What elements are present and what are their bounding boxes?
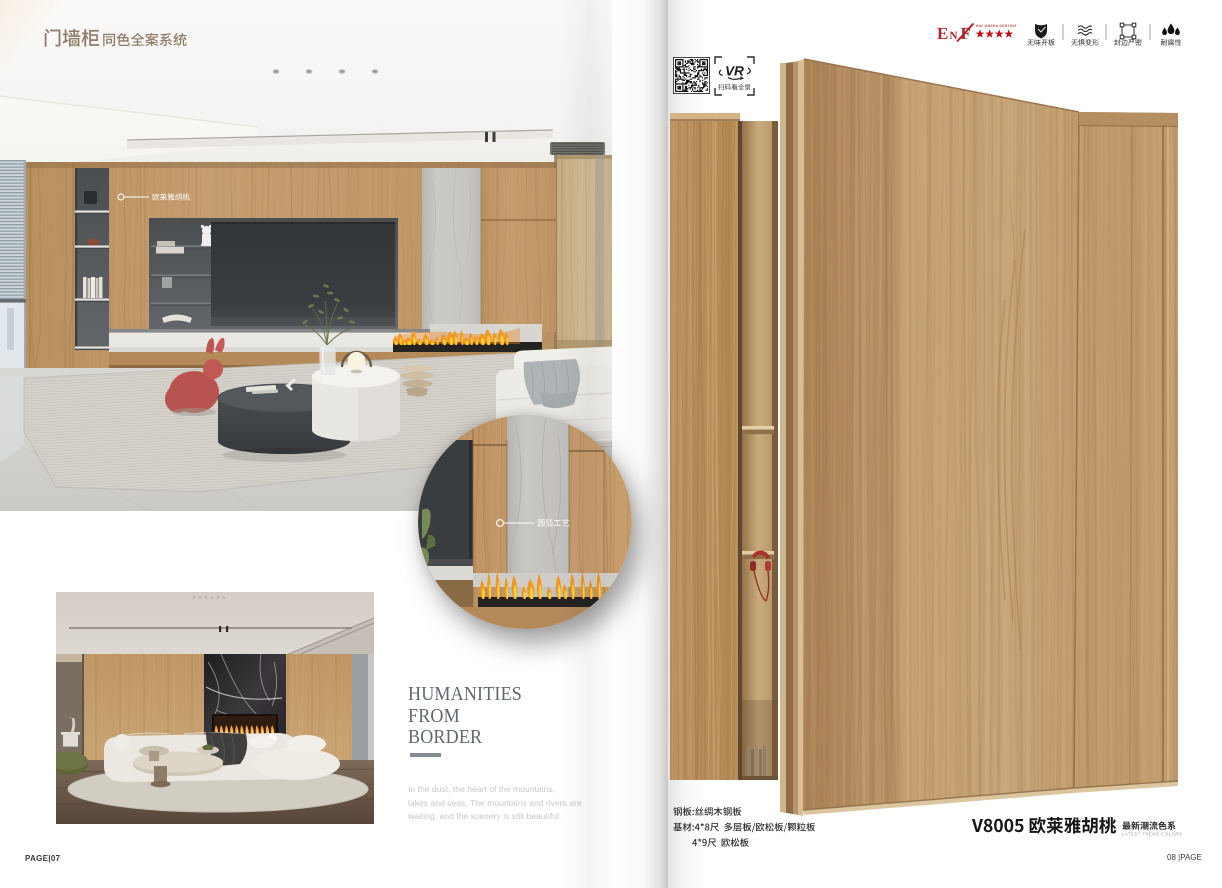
svg-text:LATEST TREND COLORS: LATEST TREND COLORS [1122,832,1182,837]
